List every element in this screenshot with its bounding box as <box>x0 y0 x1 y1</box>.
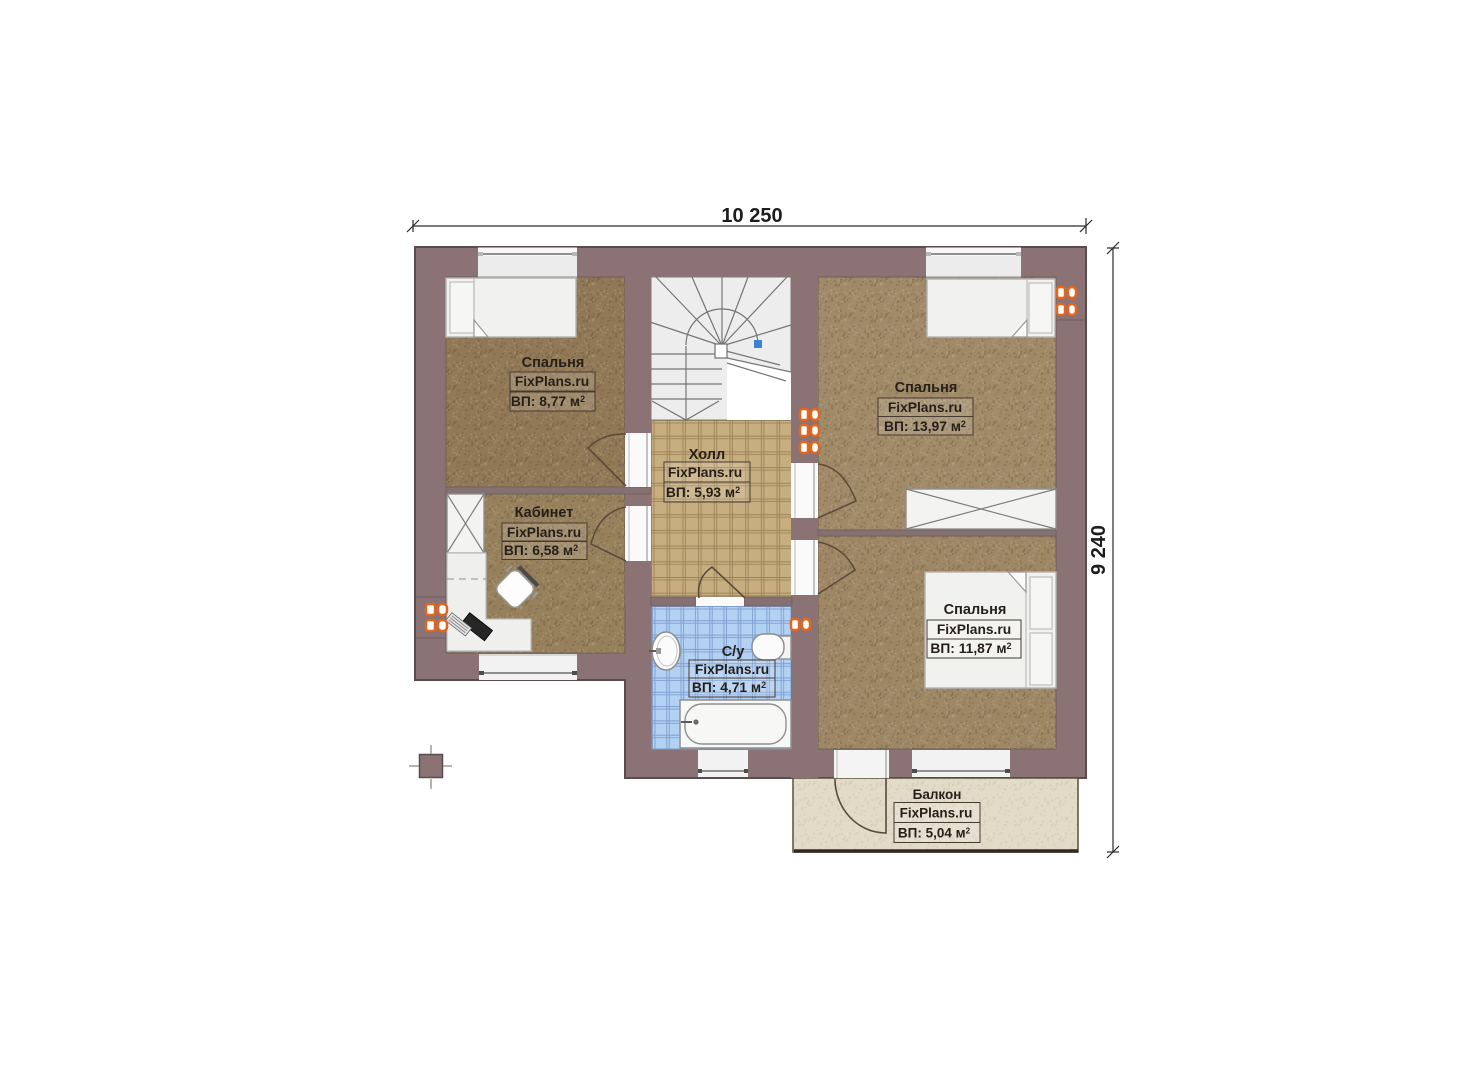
svg-text:Холл: Холл <box>689 447 725 463</box>
svg-text:FixPlans.ru: FixPlans.ru <box>515 374 589 389</box>
svg-text:FixPlans.ru: FixPlans.ru <box>937 622 1011 637</box>
svg-text:FixPlans.ru: FixPlans.ru <box>695 662 769 677</box>
svg-text:С/у: С/у <box>722 644 745 660</box>
svg-text:Кабинет: Кабинет <box>515 505 574 521</box>
svg-text:FixPlans.ru: FixPlans.ru <box>900 806 973 821</box>
svg-text:ВП: 5,04 м2: ВП: 5,04 м2 <box>898 826 971 841</box>
svg-text:Балкон: Балкон <box>913 787 962 802</box>
svg-text:Спальня: Спальня <box>895 380 958 396</box>
svg-text:FixPlans.ru: FixPlans.ru <box>888 400 962 415</box>
svg-text:ВП: 5,93 м2: ВП: 5,93 м2 <box>666 485 740 500</box>
svg-text:ВП: 6,58 м2: ВП: 6,58 м2 <box>504 543 578 558</box>
svg-text:Спальня: Спальня <box>522 355 585 371</box>
svg-text:ВП: 11,87 м2: ВП: 11,87 м2 <box>930 641 1011 656</box>
svg-text:FixPlans.ru: FixPlans.ru <box>507 525 581 540</box>
svg-text:ВП: 8,77 м2: ВП: 8,77 м2 <box>511 394 585 409</box>
svg-text:FixPlans.ru: FixPlans.ru <box>668 465 742 480</box>
svg-text:Спальня: Спальня <box>944 602 1007 618</box>
svg-text:10 250: 10 250 <box>721 205 782 227</box>
svg-text:ВП: 4,71 м2: ВП: 4,71 м2 <box>692 680 766 695</box>
svg-text:ВП: 13,97 м2: ВП: 13,97 м2 <box>884 419 966 434</box>
svg-text:9 240: 9 240 <box>1088 525 1110 575</box>
